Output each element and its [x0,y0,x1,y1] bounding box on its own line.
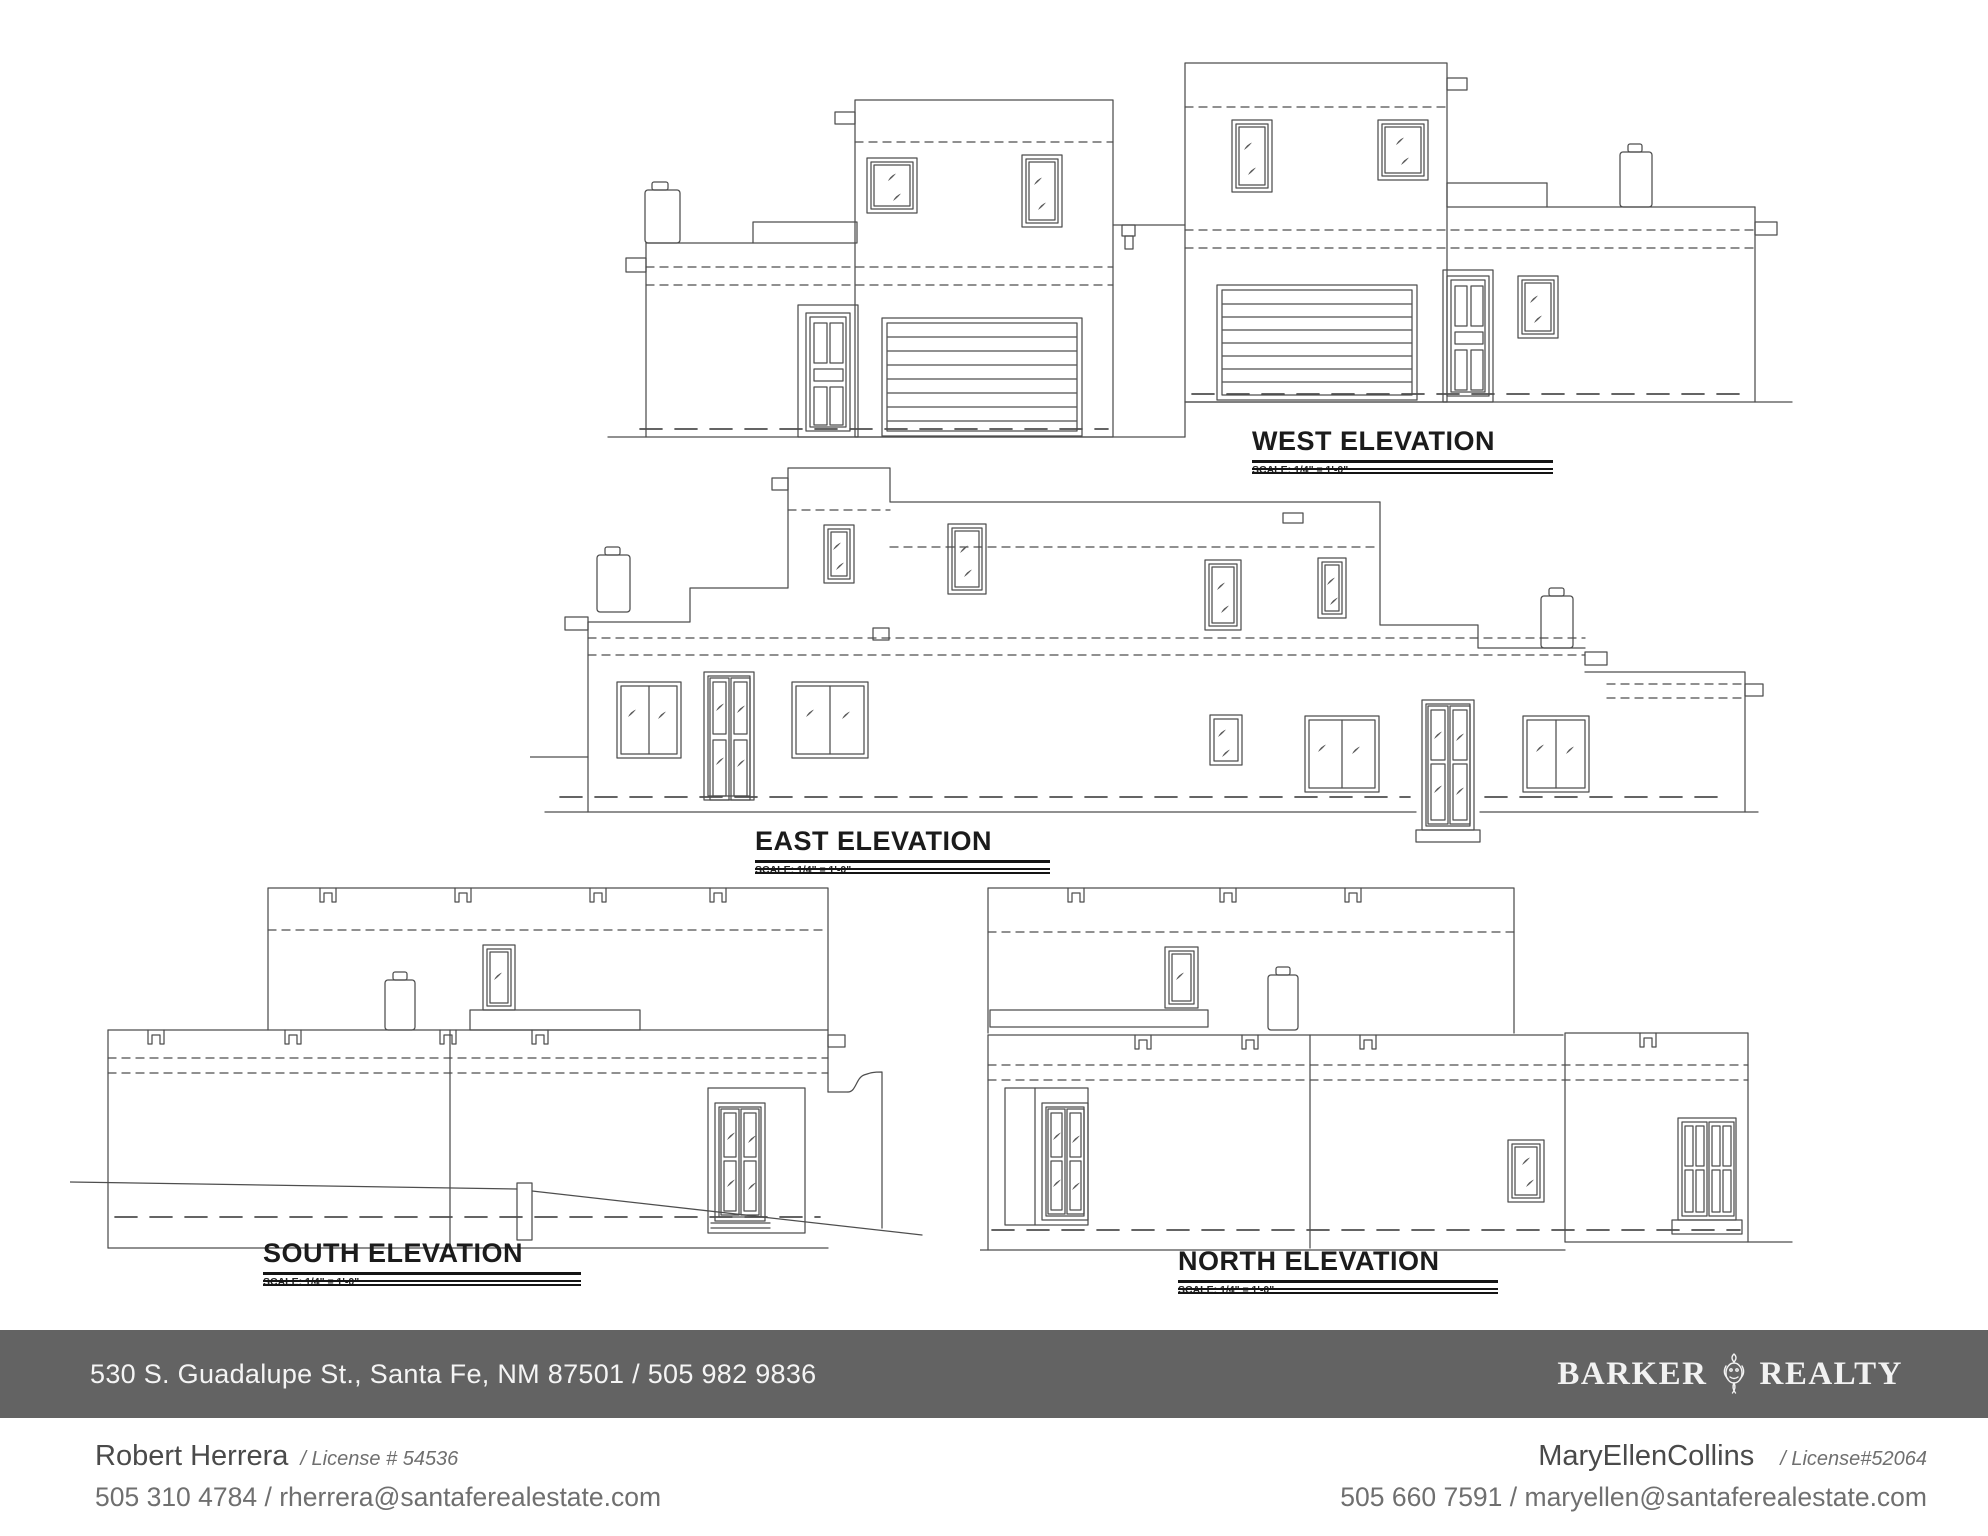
window [1318,558,1346,618]
west-elevation-drawing [600,30,1800,450]
south-elevation-title: SOUTH ELEVATION [263,1238,581,1275]
agent-name: Robert Herrera [95,1440,288,1472]
west-elevation-title: WEST ELEVATION [1252,426,1553,463]
window [1518,276,1558,338]
agent-block-left: Robert Herrera/ License # 54536 505 310 … [95,1440,661,1513]
upper-door [483,945,515,1010]
brand-word-realty: REALTY [1760,1356,1904,1393]
east-elevation-scale: SCALE: 1/4" = 1'-0" [755,864,1050,876]
window [824,525,854,583]
double-window [1523,716,1589,792]
south-elevation-label: SOUTH ELEVATION SCALE: 1/4" = 1'-0" [263,1238,581,1288]
elevation-sheet: WEST ELEVATION SCALE: 1/4" = 1'-0" EAST … [0,0,1988,1536]
lion-crest-icon [1717,1352,1751,1396]
french-door [708,1088,805,1233]
roof-canale [1122,225,1135,249]
entry-door [798,305,858,437]
west-elevation-scale: SCALE: 1/4" = 1'-0" [1252,464,1553,476]
double-window [617,682,681,758]
upper-door [1165,947,1198,1008]
window [1205,560,1241,630]
agent-name-line: Robert Herrera/ License # 54536 [95,1440,661,1473]
window [1210,715,1242,765]
window [1508,1140,1544,1202]
window [948,524,986,594]
agent-contact: 505 310 4784 / rherrera@santaferealestat… [95,1482,661,1513]
window [1232,120,1272,192]
west-unit-a [608,100,1185,437]
footer-bar: 530 S. Guadalupe St., Santa Fe, NM 87501… [0,1330,1988,1418]
south-elevation-scale: SCALE: 1/4" = 1'-0" [263,1276,581,1288]
east-elevation-label: EAST ELEVATION SCALE: 1/4" = 1'-0" [755,826,1050,876]
north-rear-wall [988,888,1514,1033]
east-unit-a [530,468,1585,812]
agent-license: / License # 54536 [300,1448,458,1470]
window [1022,155,1062,227]
french-door [704,672,754,800]
office-address: 530 S. Guadalupe St., Santa Fe, NM 87501… [90,1359,817,1390]
north-elevation-label: NORTH ELEVATION SCALE: 1/4" = 1'-0" [1178,1246,1498,1296]
east-elevation-drawing [530,460,1780,870]
double-window [1305,716,1379,792]
double-window [792,682,868,758]
agent-block-right: MaryEllenCollins/ License#52064 505 660 … [1340,1440,1927,1513]
window [867,158,917,213]
south-elevation-drawing [70,860,970,1270]
garage-door [882,318,1082,436]
east-elevation-title: EAST ELEVATION [755,826,1050,863]
brand-word-barker: BARKER [1557,1356,1707,1393]
west-unit-b [1185,63,1792,437]
west-elevation-label: WEST ELEVATION SCALE: 1/4" = 1'-0" [1252,426,1553,476]
north-elevation-title: NORTH ELEVATION [1178,1246,1498,1283]
entry-door [1443,270,1493,402]
agent-license: / License#52064 [1780,1448,1927,1470]
north-front-walls [980,1033,1792,1250]
window [1378,120,1428,180]
south-rear-wall [268,888,828,1030]
barker-realty-logo: BARKER REALTY [1557,1352,1903,1396]
agent-name-line: MaryEllenCollins/ License#52064 [1340,1440,1927,1473]
french-door [1416,700,1480,842]
south-front-wall [70,1030,922,1248]
agent-name: MaryEllenCollins [1538,1440,1754,1472]
north-elevation-scale: SCALE: 1/4" = 1'-0" [1178,1284,1498,1296]
french-door [1005,1088,1088,1225]
french-door [1672,1118,1742,1234]
agent-contact: 505 660 7591 / maryellen@santaferealesta… [1340,1482,1927,1513]
garage-door [1217,285,1417,400]
north-elevation-drawing [980,870,1900,1290]
